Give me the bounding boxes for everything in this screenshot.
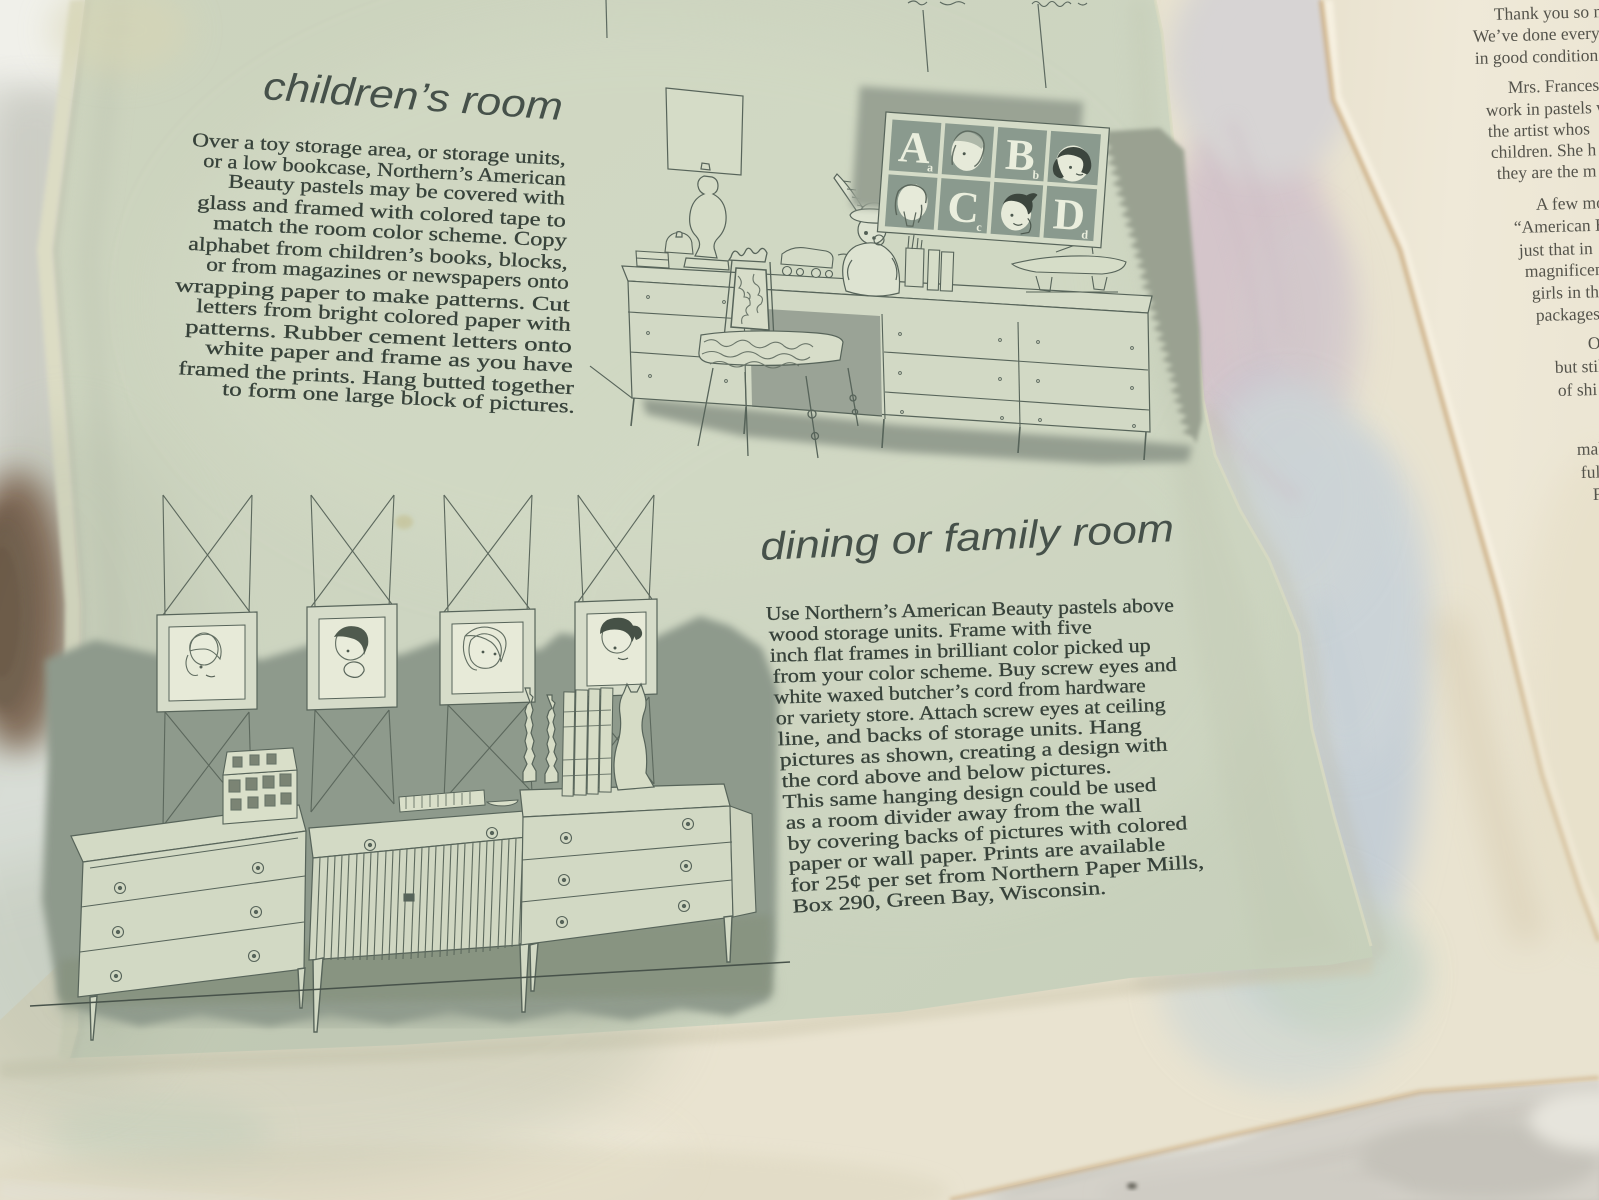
svg-text:just that in: just that in [1518,238,1594,260]
svg-text:“American B: “American B [1514,215,1599,237]
svg-text:We’ve done every: We’ve done every [1473,23,1599,46]
svg-text:packages: packages [1536,303,1599,325]
svg-text:a: a [927,160,934,174]
svg-text:Our: Our [1588,332,1599,353]
svg-text:full: full [1581,461,1599,482]
svg-text:they are the m: they are the m [1497,160,1597,183]
svg-text:b: b [1032,168,1040,182]
svg-text:girls in th: girls in th [1532,281,1599,303]
svg-text:Mrs. Frances H: Mrs. Frances H [1508,74,1599,97]
svg-text:of shi: of shi [1558,379,1598,400]
svg-text:in good condition: in good condition [1475,45,1599,68]
svg-text:magnificen: magnificen [1525,259,1599,281]
svg-text:work in pastels w: work in pastels w [1486,97,1599,120]
svg-text:Fr: Fr [1593,484,1599,504]
svg-text:but stil: but stil [1555,356,1599,377]
svg-text:d: d [1081,227,1089,241]
svg-text:children. She h: children. She h [1491,139,1597,162]
svg-text:the artist whos: the artist whos [1488,118,1591,141]
svg-text:A few mo: A few mo [1536,192,1599,214]
svg-text:Thank you so m: Thank you so m [1494,1,1599,24]
svg-text:mak: mak [1577,438,1599,459]
